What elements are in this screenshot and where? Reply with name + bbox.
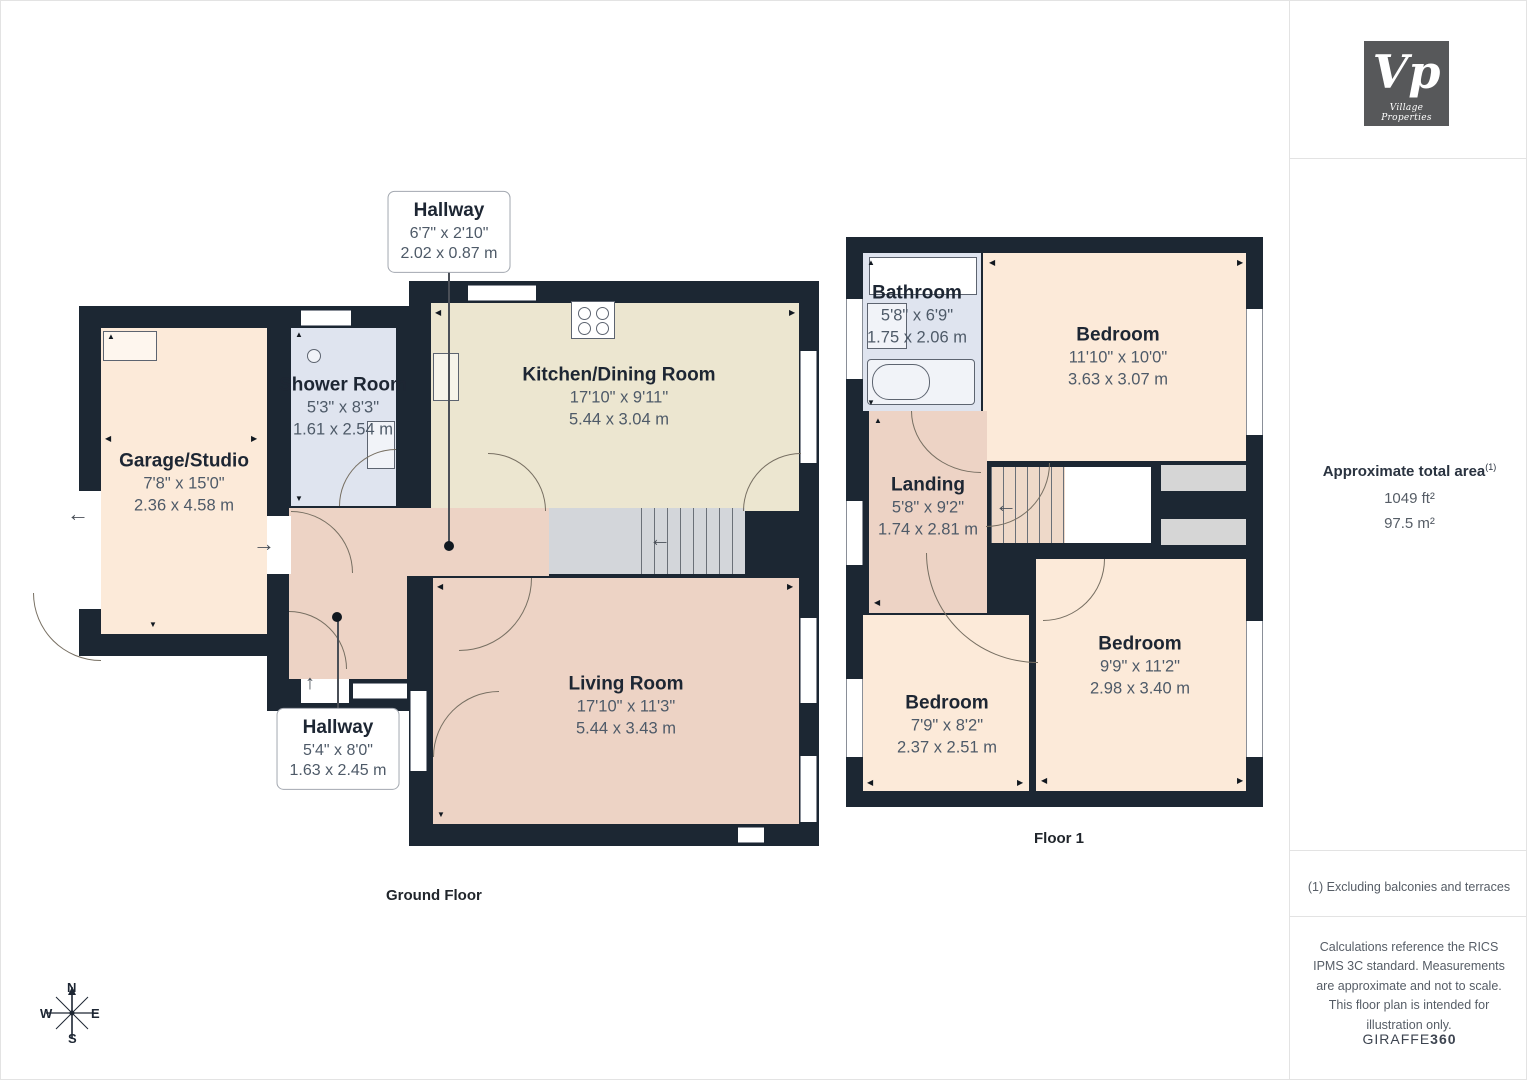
floorplan-page: ← → ← ↑ ◀ ▶ ▼ ▲ ◀ ▶ ◀ ▶ ▼ ▲ ▼ Garage/Stu… bbox=[0, 0, 1527, 1080]
window bbox=[410, 691, 427, 771]
room-label-shower-room: Shower Room 5'3" x 8'3" 1.61 x 2.54 m bbox=[279, 373, 407, 442]
area-imperial: 1049 ft² bbox=[1290, 490, 1527, 507]
window bbox=[738, 827, 764, 843]
dim-marker: ▶ bbox=[251, 435, 257, 443]
callout-hallway-top: Hallway 6'7" x 2'10" 2.02 x 0.87 m bbox=[388, 191, 511, 273]
window bbox=[800, 351, 817, 463]
giraffe360-brand: GIRAFFE360 bbox=[1290, 1031, 1527, 1047]
window bbox=[468, 285, 536, 301]
window bbox=[846, 679, 863, 757]
stairs-up-arrow: ← bbox=[649, 528, 671, 550]
eaves-storage bbox=[1161, 465, 1246, 491]
dim-marker: ◀ bbox=[437, 583, 443, 591]
ground-floor-caption: Ground Floor bbox=[386, 887, 482, 904]
dim-marker: ▼ bbox=[867, 399, 875, 407]
dim-marker: ◀ bbox=[1041, 777, 1047, 785]
logo-caption: Village Properties bbox=[1364, 103, 1449, 123]
compass-n: N bbox=[67, 980, 76, 995]
divider bbox=[1290, 916, 1527, 917]
window bbox=[846, 299, 863, 379]
leader-dot bbox=[332, 612, 342, 622]
village-properties-logo: Vp Village Properties bbox=[1364, 41, 1449, 126]
garage-entry-arrow: → bbox=[253, 533, 275, 555]
dim-marker: ▲ bbox=[874, 417, 882, 425]
room-label-garage-studio: Garage/Studio 7'8" x 15'0" 2.36 x 4.58 m bbox=[119, 449, 249, 518]
dim-marker: ◀ bbox=[989, 259, 995, 267]
dim-marker: ◀ bbox=[105, 435, 111, 443]
dim-marker: ◀ bbox=[874, 599, 880, 607]
dim-marker: ▼ bbox=[295, 495, 303, 503]
window bbox=[353, 683, 407, 699]
dim-marker: ▶ bbox=[787, 583, 793, 591]
callout-leader bbox=[448, 269, 450, 546]
window bbox=[1246, 309, 1263, 435]
stairs-down-arrow: ← bbox=[995, 494, 1017, 516]
window bbox=[301, 310, 351, 326]
dim-marker: ◀ bbox=[867, 779, 873, 787]
window bbox=[846, 501, 863, 565]
divider bbox=[1290, 850, 1527, 851]
dim-marker: ▶ bbox=[789, 309, 795, 317]
compass-e: E bbox=[91, 1006, 100, 1021]
info-sidebar: Vp Village Properties Approximate total … bbox=[1289, 1, 1527, 1080]
eaves-storage bbox=[1161, 519, 1246, 545]
room-label-bedroom-1: Bedroom 11'10" x 10'0" 3.63 x 3.07 m bbox=[1068, 323, 1168, 392]
cabinet-icon bbox=[433, 353, 459, 401]
window bbox=[800, 756, 817, 822]
room-label-bathroom: Bathroom 5'8" x 6'9" 1.75 x 2.06 m bbox=[867, 281, 967, 350]
dim-marker: ▲ bbox=[107, 333, 115, 341]
leader-dot bbox=[444, 541, 454, 551]
area-title: Approximate total area(1) bbox=[1290, 462, 1527, 480]
garage-exit-arrow: ← bbox=[67, 503, 89, 525]
dim-marker: ▼ bbox=[437, 811, 445, 819]
dim-marker: ◀ bbox=[435, 309, 441, 317]
callout-leader bbox=[337, 617, 339, 712]
disclaimer-text: Calculations reference the RICS IPMS 3C … bbox=[1304, 938, 1514, 1035]
area-metric: 97.5 m² bbox=[1290, 515, 1527, 532]
dim-marker: ▼ bbox=[149, 621, 157, 629]
compass-w: W bbox=[40, 1006, 52, 1021]
room-label-bedroom-2: Bedroom 7'9" x 8'2" 2.37 x 2.51 m bbox=[897, 691, 997, 760]
callout-hallway-bottom: Hallway 5'4" x 8'0" 1.63 x 2.45 m bbox=[277, 708, 400, 790]
dim-marker: ▲ bbox=[867, 259, 875, 267]
sink-icon bbox=[307, 349, 321, 363]
dim-marker: ▶ bbox=[1237, 777, 1243, 785]
area-footnote-ref: (1) bbox=[1485, 462, 1496, 472]
floor1-caption: Floor 1 bbox=[1034, 830, 1084, 847]
bathtub-icon bbox=[867, 359, 975, 405]
window bbox=[1246, 621, 1263, 757]
room-label-landing: Landing 5'8" x 9'2" 1.74 x 2.81 m bbox=[878, 473, 978, 542]
entrance-arrow: ↑ bbox=[305, 673, 315, 693]
area-footnote: (1) Excluding balconies and terraces bbox=[1304, 878, 1514, 897]
window bbox=[800, 618, 817, 703]
door-arc bbox=[33, 593, 101, 661]
compass-s: S bbox=[68, 1031, 77, 1046]
dim-marker: ▶ bbox=[1017, 779, 1023, 787]
room-label-bedroom-3: Bedroom 9'9" x 11'2" 2.98 x 3.40 m bbox=[1090, 632, 1190, 701]
room-label-kitchen-dining: Kitchen/Dining Room 17'10" x 9'11" 5.44 … bbox=[522, 363, 715, 432]
divider bbox=[1290, 158, 1527, 159]
stairwell-void bbox=[1065, 467, 1151, 543]
dim-marker: ▲ bbox=[295, 331, 303, 339]
room-label-living-room: Living Room 17'10" x 11'3" 5.44 x 3.43 m bbox=[568, 672, 683, 741]
logo-vp-text: Vp bbox=[1364, 41, 1449, 103]
stove-icon bbox=[571, 301, 615, 339]
dim-marker: ▶ bbox=[1237, 259, 1243, 267]
